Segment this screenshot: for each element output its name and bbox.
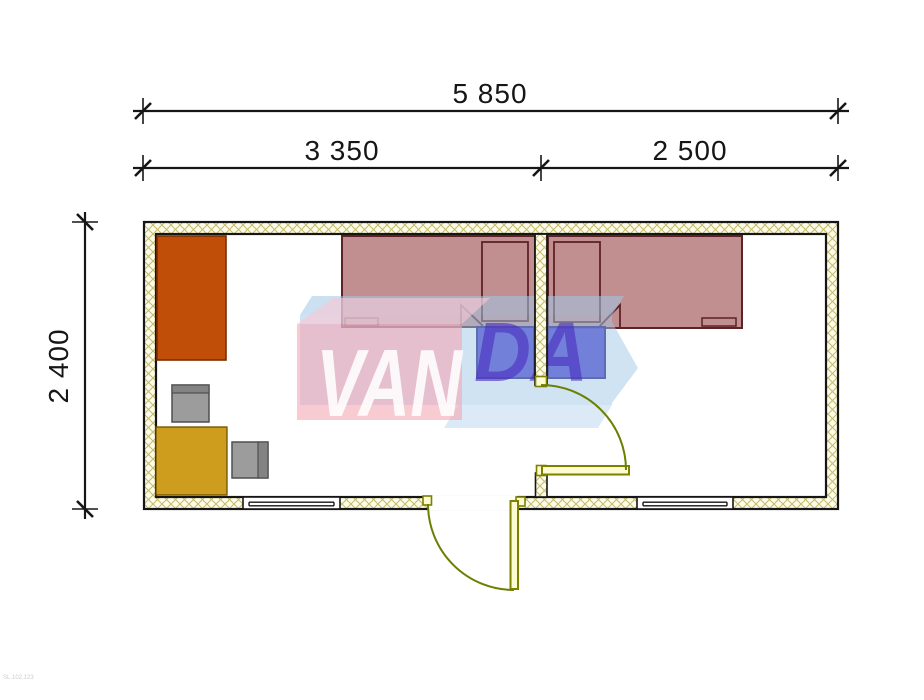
dimension-label-overall-width: 5 850 bbox=[452, 78, 527, 109]
dimension-room-widths: 3 350 2 500 bbox=[133, 135, 849, 181]
dimension-label-overall-depth: 2 400 bbox=[43, 328, 74, 403]
chair-east bbox=[232, 442, 268, 478]
dimension-overall-depth: 2 400 bbox=[43, 212, 98, 519]
entrance-door-opening bbox=[428, 496, 517, 511]
interior-wall-stub bbox=[536, 473, 548, 497]
window-right bbox=[637, 497, 733, 509]
wardrobe bbox=[157, 236, 226, 360]
watermark-text-da: DA bbox=[474, 305, 588, 399]
corner-stamp-code: SL.102.123 bbox=[3, 675, 34, 681]
interior-door-leaf bbox=[542, 466, 629, 475]
entrance-door-swing-arc bbox=[428, 504, 514, 590]
floor-plan-page: 5 850 3 350 2 500 2 400 bbox=[0, 0, 924, 700]
watermark: VAN DA bbox=[297, 296, 638, 437]
watermark-text-van: VAN bbox=[316, 330, 463, 437]
dimension-label-room-left: 3 350 bbox=[304, 135, 379, 166]
dimension-label-room-right: 2 500 bbox=[652, 135, 727, 166]
dimension-overall-width: 5 850 bbox=[133, 78, 849, 124]
watermark-blue-bottom-face bbox=[444, 405, 612, 428]
entrance-door-leaf bbox=[511, 501, 519, 589]
entrance-door-jamb-post bbox=[423, 496, 432, 505]
chair-backrest bbox=[258, 442, 268, 478]
desk bbox=[156, 427, 227, 495]
chair-backrest bbox=[172, 385, 209, 393]
interior-wall bbox=[535, 234, 547, 385]
window-left bbox=[243, 497, 340, 509]
chair-north bbox=[172, 385, 209, 422]
floor-plan-drawing: 5 850 3 350 2 500 2 400 bbox=[0, 0, 924, 700]
